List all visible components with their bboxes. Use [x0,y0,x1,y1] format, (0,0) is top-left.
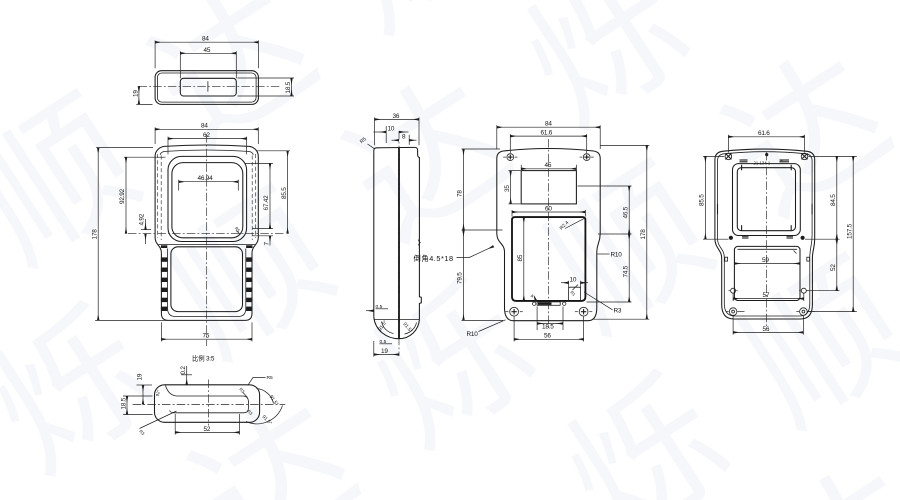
svg-text:36: 36 [393,113,400,120]
svg-text:比例 3:5: 比例 3:5 [192,354,215,363]
svg-text:19: 19 [132,90,139,97]
svg-text:倒角4.5*18: 倒角4.5*18 [414,254,454,263]
svg-text:61.6: 61.6 [541,130,553,137]
svg-text:84: 84 [545,121,552,128]
svg-text:46.5: 46.5 [622,206,629,218]
svg-text:85: 85 [517,254,524,261]
svg-text:84: 84 [201,123,208,130]
svg-text:85.5: 85.5 [281,187,288,199]
svg-text:R10: R10 [467,331,479,338]
svg-text:84: 84 [202,36,209,43]
svg-text:4.92: 4.92 [139,213,146,225]
svg-text:18.5: 18.5 [542,324,554,331]
svg-text:18.5: 18.5 [120,397,127,409]
svg-text:59: 59 [762,257,769,264]
svg-text:178: 178 [640,229,647,240]
svg-text:75: 75 [203,333,210,340]
svg-text:61.6: 61.6 [758,130,770,137]
svg-text:18.5: 18.5 [285,81,292,93]
svg-text:178: 178 [91,229,98,240]
svg-text:74.5: 74.5 [622,265,629,277]
svg-text:R10: R10 [611,252,623,259]
svg-text:19: 19 [136,373,143,380]
svg-text:45: 45 [545,162,552,169]
svg-text:85.5: 85.5 [699,194,706,206]
svg-text:60: 60 [545,205,552,212]
svg-text:52: 52 [830,264,837,271]
svg-text:19: 19 [381,348,388,355]
svg-text:21-134-1: 21-134-1 [754,161,771,166]
svg-text:79.5: 79.5 [457,272,464,284]
svg-text:R5: R5 [267,375,274,381]
svg-text:67.42: 67.42 [263,195,270,211]
svg-text:57: 57 [763,292,770,299]
svg-text:157.5: 157.5 [846,223,853,239]
svg-text:56: 56 [763,326,770,333]
svg-text:52: 52 [204,426,211,433]
svg-text:62: 62 [203,132,210,139]
svg-text:46.94: 46.94 [198,175,214,182]
svg-text:35: 35 [504,185,511,192]
svg-text:R3: R3 [614,308,622,315]
svg-text:84.5: 84.5 [830,194,837,206]
svg-text:4: 4 [531,294,534,300]
svg-text:10: 10 [388,125,395,132]
svg-text:56: 56 [544,333,551,340]
svg-text:45: 45 [204,47,211,54]
svg-text:78: 78 [457,190,464,197]
svg-text:92.92: 92.92 [119,188,126,204]
svg-text:0.2: 0.2 [180,366,187,375]
svg-text:10: 10 [570,277,577,284]
